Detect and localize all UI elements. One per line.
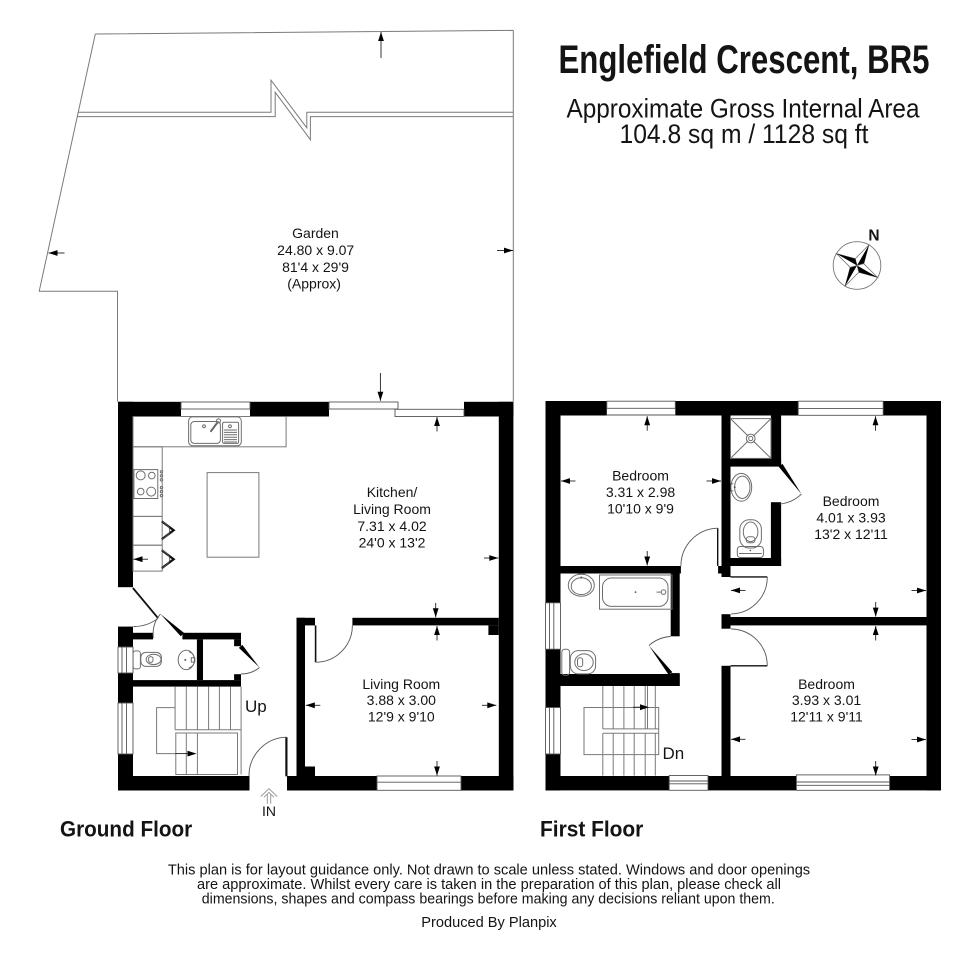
svg-text:Living Room: Living Room — [353, 501, 431, 517]
svg-text:Dn: Dn — [663, 744, 685, 763]
svg-text:IN: IN — [262, 803, 276, 819]
svg-text:3.93 x 3.01: 3.93 x 3.01 — [792, 692, 861, 708]
svg-text:12'11 x 9'11: 12'11 x 9'11 — [790, 709, 863, 725]
svg-text:3.31 x 2.98: 3.31 x 2.98 — [606, 484, 675, 500]
svg-text:Up: Up — [245, 697, 267, 716]
svg-text:24.80 x 9.07: 24.80 x 9.07 — [277, 242, 354, 258]
svg-text:First Floor: First Floor — [540, 817, 644, 842]
svg-text:24'0 x 13'2: 24'0 x 13'2 — [359, 535, 426, 551]
svg-text:(Approx): (Approx) — [287, 276, 341, 292]
svg-text:Ground Floor: Ground Floor — [60, 817, 193, 842]
svg-text:7.31 x 4.02: 7.31 x 4.02 — [357, 518, 426, 534]
svg-text:Garden: Garden — [292, 225, 339, 241]
svg-text:10'10 x 9'9: 10'10 x 9'9 — [607, 500, 674, 516]
svg-text:13'2 x 12'11: 13'2 x 12'11 — [814, 526, 888, 542]
svg-text:Living Room: Living Room — [362, 676, 440, 692]
svg-text:3.88 x 3.00: 3.88 x 3.00 — [367, 692, 436, 708]
svg-text:Produced By Planpix: Produced By Planpix — [421, 915, 557, 931]
svg-text:Bedroom: Bedroom — [823, 493, 880, 509]
svg-text:4.01 x 3.93: 4.01 x 3.93 — [816, 509, 885, 525]
svg-text:Bedroom: Bedroom — [798, 676, 855, 692]
svg-text:Bedroom: Bedroom — [612, 468, 669, 484]
svg-text:Kitchen/: Kitchen/ — [367, 484, 418, 500]
svg-text:N: N — [868, 228, 879, 245]
svg-text:dimensions, shapes and compass: dimensions, shapes and compass bearings … — [202, 892, 775, 908]
svg-text:12'9 x 9'10: 12'9 x 9'10 — [368, 708, 435, 724]
svg-text:104.8 sq m / 1128 sq ft: 104.8 sq m / 1128 sq ft — [620, 119, 870, 149]
svg-text:Englefield Crescent, BR5: Englefield Crescent, BR5 — [559, 38, 930, 82]
svg-text:81'4 x 29'9: 81'4 x 29'9 — [282, 259, 349, 275]
